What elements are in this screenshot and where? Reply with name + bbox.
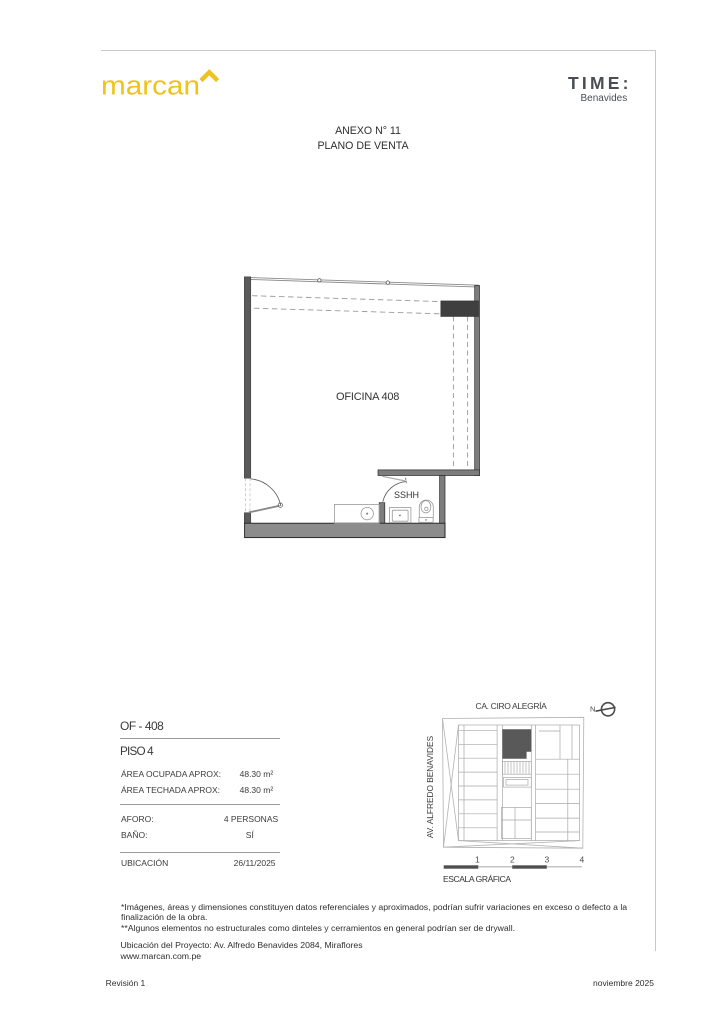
- svg-text:4: 4: [580, 855, 585, 865]
- svg-text:marcan: marcan: [101, 71, 200, 101]
- svg-text:2: 2: [510, 855, 515, 865]
- svg-text:1: 1: [475, 855, 480, 865]
- svg-text:3: 3: [545, 855, 550, 865]
